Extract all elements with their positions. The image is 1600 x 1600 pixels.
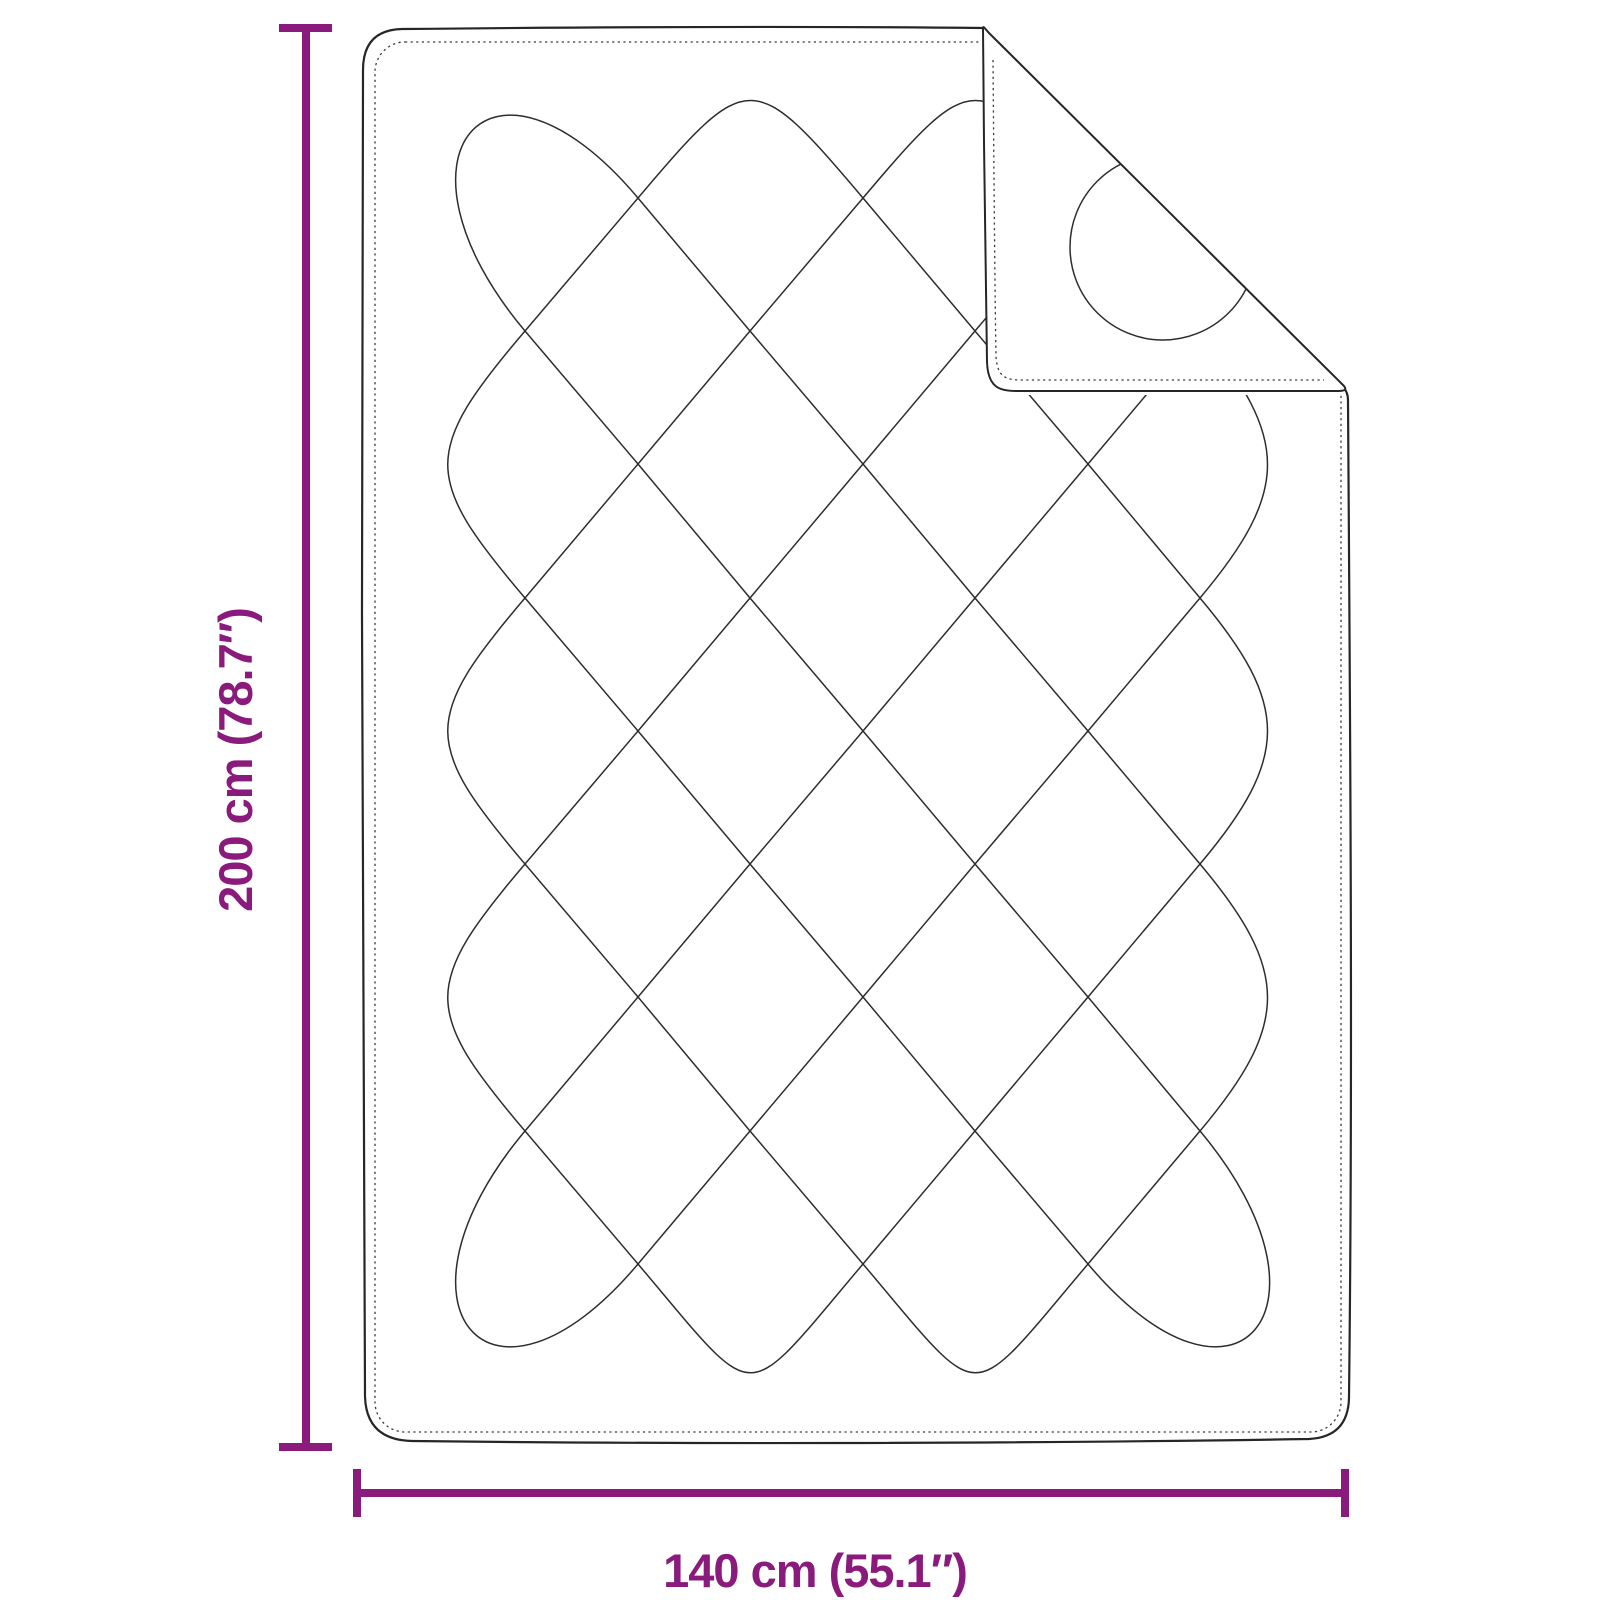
flap-face bbox=[983, 27, 1345, 391]
horizontal-dimension: 140 cm (55.1″) bbox=[357, 1469, 1345, 1597]
folded-corner bbox=[983, 27, 1345, 391]
vertical-dimension: 200 cm (78.7″) bbox=[209, 28, 332, 1447]
width-dimension-label: 140 cm (55.1″) bbox=[663, 1544, 967, 1597]
blanket-outline bbox=[362, 27, 1351, 1443]
height-dimension-label: 200 cm (78.7″) bbox=[209, 608, 262, 912]
product-dimension-diagram: 200 cm (78.7″) 140 cm (55.1″) bbox=[0, 0, 1600, 1600]
blanket-diagram-canvas: 200 cm (78.7″) 140 cm (55.1″) bbox=[0, 0, 1600, 1600]
